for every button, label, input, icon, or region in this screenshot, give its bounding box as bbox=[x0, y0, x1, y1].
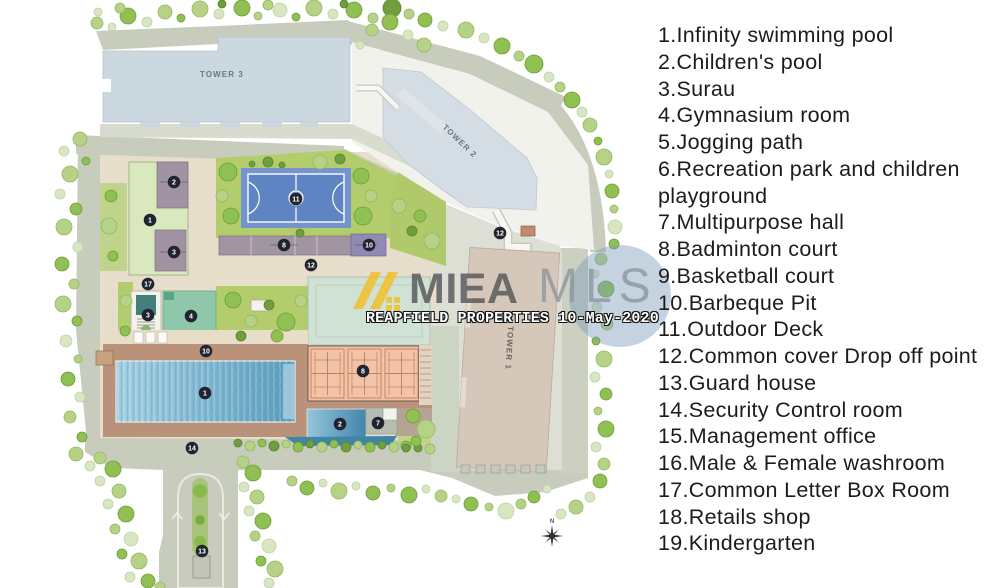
svg-text:N: N bbox=[550, 519, 554, 525]
svg-text:3: 3 bbox=[172, 250, 176, 257]
svg-text:1: 1 bbox=[203, 391, 207, 398]
svg-text:11: 11 bbox=[292, 197, 300, 204]
svg-text:14: 14 bbox=[188, 446, 196, 453]
svg-text:12: 12 bbox=[496, 231, 504, 238]
svg-text:7: 7 bbox=[376, 421, 380, 428]
svg-text:3: 3 bbox=[146, 313, 150, 320]
svg-text:8: 8 bbox=[282, 243, 286, 250]
svg-text:2: 2 bbox=[172, 180, 176, 187]
svg-text:4: 4 bbox=[189, 314, 193, 321]
svg-text:13: 13 bbox=[198, 549, 206, 556]
svg-text:TOWER 3: TOWER 3 bbox=[200, 70, 244, 79]
svg-text:8: 8 bbox=[361, 369, 365, 376]
svg-text:12: 12 bbox=[307, 263, 315, 270]
svg-text:10: 10 bbox=[202, 349, 210, 356]
svg-text:1: 1 bbox=[148, 218, 152, 225]
svg-text:10: 10 bbox=[365, 243, 373, 250]
svg-text:2: 2 bbox=[338, 422, 342, 429]
svg-text:17: 17 bbox=[144, 282, 152, 289]
